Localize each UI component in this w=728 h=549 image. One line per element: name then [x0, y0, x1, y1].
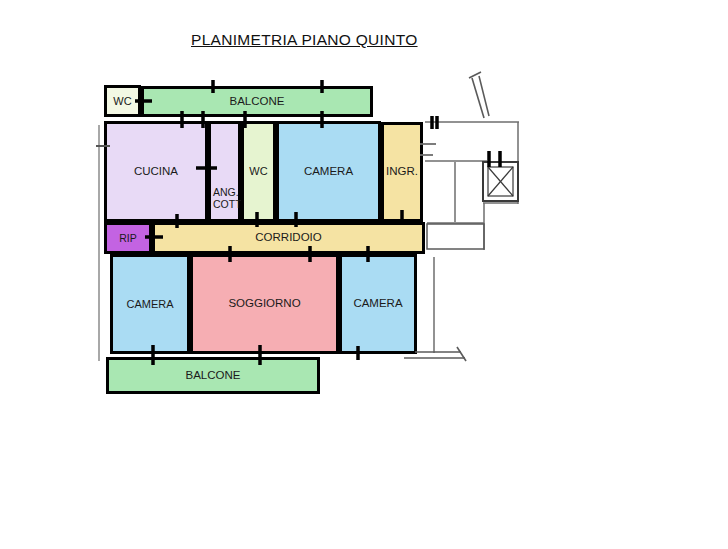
- page-title: PLANIMETRIA PIANO QUINTO: [191, 31, 418, 49]
- room-balcone-top: BALCONE: [141, 86, 373, 117]
- room-soggiorno: SOGGIORNO: [190, 254, 339, 354]
- elevator-shaft: [483, 162, 518, 201]
- room-cucina: CUCINA: [104, 121, 208, 222]
- room-ripostiglio: RIP: [104, 222, 152, 254]
- room-balcone-bottom: BALCONE: [106, 357, 320, 394]
- entrance-diagonal: [469, 72, 489, 118]
- room-corridoio: CORRIDOIO: [152, 222, 425, 254]
- room-angolo-cottura: ANG. COTT: [208, 121, 241, 222]
- room-ingresso: INGR.: [381, 122, 423, 222]
- room-camera-top: CAMERA: [276, 121, 381, 222]
- room-wc-balcony: WC: [104, 85, 141, 117]
- room-wc: WC: [241, 121, 276, 222]
- room-camera-right: CAMERA: [339, 254, 417, 354]
- room-camera-left: CAMERA: [110, 254, 190, 354]
- floorplan-page: PLANIMETRIA PIANO QUINTO WC BALCONE CUCI…: [0, 0, 728, 549]
